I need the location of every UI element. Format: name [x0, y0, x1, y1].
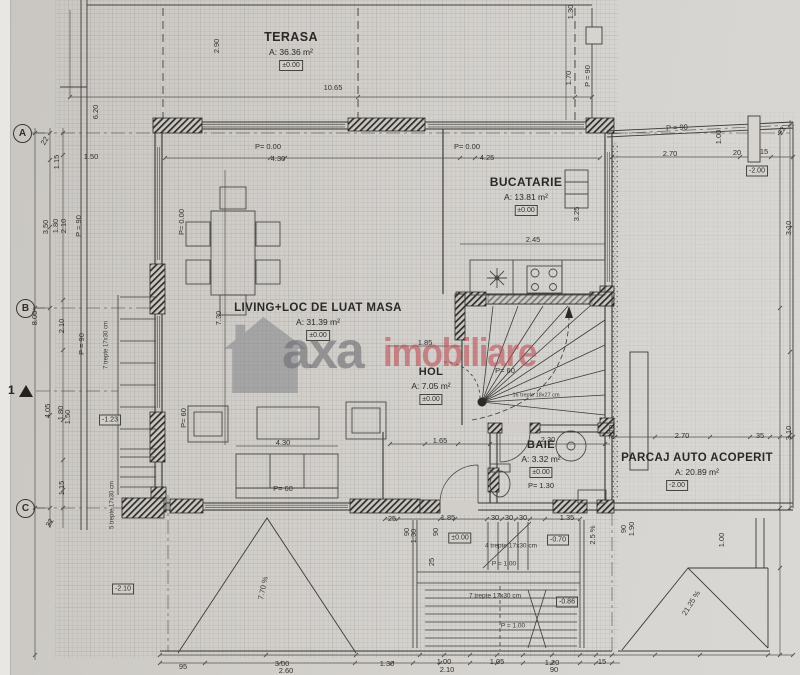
annotation-label: 7 trepte 17x30 cm: [469, 593, 521, 600]
room-level-marker: ±0.00: [306, 330, 329, 341]
dimension-label: 1.50: [64, 410, 72, 425]
dimension-label: P = 90: [584, 65, 592, 87]
room-area: A: 13.81 m²: [504, 192, 548, 202]
room-name: BAIE: [527, 439, 555, 451]
annotation-label: 7 trepte 17x30 cm: [104, 321, 111, 369]
level-marker: ±0.00: [448, 533, 471, 544]
annotation-label: 21.25 %: [681, 589, 702, 616]
room-area: A: 7.05 m²: [411, 381, 450, 391]
dimension-label: 22: [776, 125, 787, 136]
dimension-label: 1.30: [567, 5, 575, 20]
dimension-label: 1.00: [718, 533, 726, 548]
dimension-label: 1.30: [410, 529, 418, 544]
dimension-label: 2.70: [675, 432, 690, 440]
dimension-label: 1.00: [715, 130, 723, 145]
room-level-marker: ±0.00: [514, 205, 537, 216]
dimension-label: 25: [428, 558, 436, 566]
dimension-label: 2.70: [663, 150, 678, 158]
room-extra-label: P= 1.30: [528, 481, 554, 490]
dimension-label: P= 60: [273, 485, 293, 493]
dimension-label: P= 0.00: [255, 143, 281, 151]
dimension-label: 95: [179, 663, 187, 671]
dimension-label: 3.10: [785, 426, 793, 441]
dimension-label: 1.15: [58, 481, 66, 496]
dimension-label: 3.10: [785, 221, 793, 236]
dimension-label: 4.05: [44, 404, 52, 419]
dimension-label: 1.85: [441, 514, 456, 522]
room-name: BUCATARIE: [490, 175, 562, 189]
room-name: PARCAJ AUTO ACOPERIT: [621, 452, 773, 464]
room-label-parcaj: PARCAJ AUTO ACOPERITA: 20.89 m²-2.00: [621, 452, 773, 491]
dimension-label: 4.30: [271, 155, 286, 163]
dimension-label: 2.10: [440, 666, 455, 674]
level-marker: -1.23: [99, 415, 121, 426]
dimension-label: 2.45: [526, 236, 541, 244]
room-area: A: 31.39 m²: [296, 317, 340, 327]
dimension-label: 30: [491, 514, 499, 522]
annotation-label: 5 trepte 17x30 cm: [110, 481, 117, 529]
dimension-label: 25: [388, 515, 396, 523]
room-level-marker: ±0.00: [419, 394, 442, 405]
dimension-label: 1.15: [53, 155, 61, 170]
room-level-marker: ±0.00: [279, 60, 302, 71]
dimension-label: P= 60: [495, 367, 515, 375]
dimension-label: 15: [598, 658, 606, 666]
room-area: A: 20.89 m²: [675, 467, 719, 477]
dimension-label: P= 0.00: [178, 209, 186, 235]
annotation-label: P = 1.00: [501, 623, 525, 630]
dimension-label: 30: [505, 514, 513, 522]
dimension-label: 1.70: [565, 71, 573, 86]
dimension-label: 1.50: [84, 153, 99, 161]
dimension-label: 4.30: [276, 439, 291, 447]
label-layer: 1 10.652.906.201.50221.153.501.802.10P =…: [0, 0, 800, 675]
annotation-label: 16 trepte 18x27 cm: [512, 393, 559, 400]
dimension-label: 6.20: [92, 105, 100, 120]
dimension-label: 22: [44, 517, 55, 528]
dimension-label: 30: [519, 514, 527, 522]
room-name: TERASA: [264, 30, 318, 44]
room-label-hol: HOLA: 7.05 m²±0.00: [411, 366, 450, 405]
dimension-label: 1.05: [490, 658, 505, 666]
dimension-label: P = 90: [78, 333, 86, 355]
room-area: A: 3.32 m²: [521, 454, 560, 464]
dimension-label: 7.30: [215, 311, 223, 326]
axis-bubble-B: B: [16, 299, 35, 318]
dimension-label: 90: [432, 528, 440, 536]
section-arrow-icon: [19, 385, 33, 397]
dimension-label: 2.60: [279, 667, 294, 675]
room-label-baie: BAIEA: 3.32 m²±0.00P= 1.30: [521, 439, 560, 490]
dimension-label: 22: [39, 135, 50, 146]
level-marker: -0.86: [556, 597, 578, 608]
axis-bubble-C: C: [16, 499, 35, 518]
annotation-label: 7.70 %: [257, 576, 269, 600]
section-number: 1: [8, 383, 15, 397]
dimension-label: 10.65: [324, 84, 343, 92]
level-marker: -2.00: [746, 166, 768, 177]
dimension-label: P = 90: [75, 215, 83, 237]
dimension-label: P = 90: [666, 123, 688, 132]
level-marker: -2.10: [112, 584, 134, 595]
dimension-label: 1.30: [380, 660, 395, 668]
dimension-label: 1.35: [560, 514, 575, 522]
dimension-label: 2.90: [213, 39, 221, 54]
dimension-label: 3.10: [608, 425, 616, 440]
dimension-label: 4.25: [480, 154, 495, 162]
dimension-label: 1.65: [433, 437, 448, 445]
dimension-label: 2.5 %: [589, 525, 597, 544]
room-name: LIVING+LOC DE LUAT MASA: [234, 302, 402, 314]
dimension-label: P= 60: [180, 408, 188, 428]
section-marker: 1: [8, 383, 33, 397]
dimension-label: 15: [760, 148, 768, 156]
floor-plan-page: 1 10.652.906.201.50221.153.501.802.10P =…: [0, 0, 800, 675]
dimension-label: 2.10: [60, 219, 68, 234]
dimension-label: 90: [550, 666, 558, 674]
room-label-terasa: TERASAA: 36.36 m²±0.00: [264, 30, 318, 71]
dimension-label: 3.50: [42, 220, 50, 235]
room-level-marker: -2.00: [666, 480, 688, 491]
dimension-label: P= 0.00: [454, 143, 480, 151]
room-area: A: 36.36 m²: [269, 47, 313, 57]
level-marker: -0.70: [547, 535, 569, 546]
dimension-label: 20: [733, 149, 741, 157]
room-level-marker: ±0.00: [529, 467, 552, 478]
axis-bubble-A: A: [13, 124, 32, 143]
dimension-label: 2.10: [58, 319, 66, 334]
dimension-label: 35: [756, 432, 764, 440]
dimension-label: 1.90: [628, 522, 636, 537]
annotation-label: 4 trepte 17x30 cm: [485, 543, 537, 550]
dimension-label: 3.25: [573, 207, 581, 222]
room-name: HOL: [419, 366, 443, 378]
dimension-label: 1.85: [418, 339, 433, 347]
room-label-bucatarie: BUCATARIEA: 13.81 m²±0.00: [490, 175, 562, 216]
annotation-label: P = 1.00: [492, 561, 516, 568]
room-label-living: LIVING+LOC DE LUAT MASAA: 31.39 m²±0.00: [234, 302, 402, 341]
